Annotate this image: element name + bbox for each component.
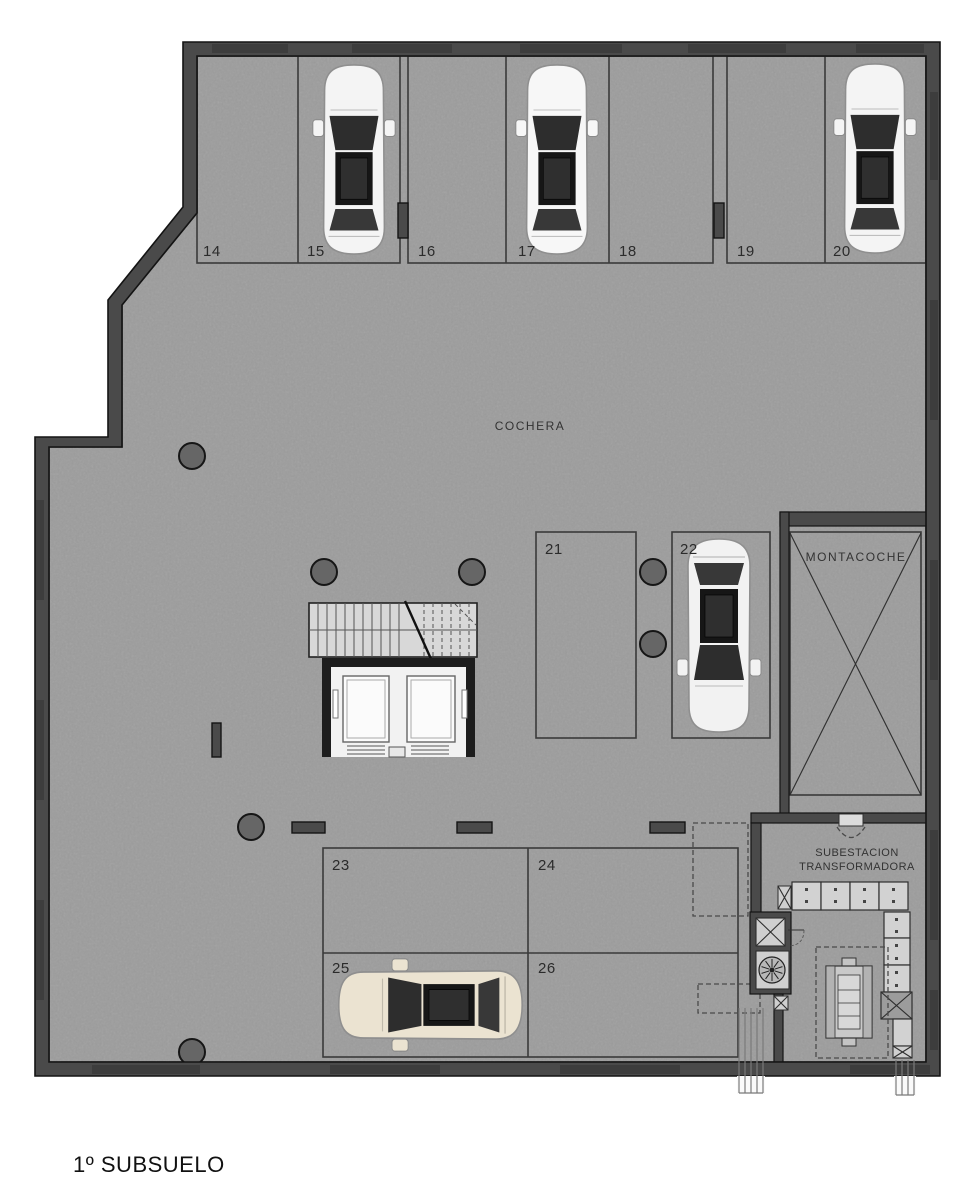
stall-label-22: 22 bbox=[680, 541, 698, 558]
car-topview-stall-22 bbox=[677, 539, 761, 732]
stall-label-19: 19 bbox=[737, 243, 755, 260]
car-topview-stall-20 bbox=[834, 64, 916, 253]
staircase bbox=[309, 601, 477, 659]
stall-label-21: 21 bbox=[545, 541, 563, 558]
column bbox=[212, 723, 221, 757]
car-topview-stall-15 bbox=[313, 65, 395, 254]
round-column bbox=[640, 559, 666, 585]
round-column bbox=[459, 559, 485, 585]
car-topview-stall-17 bbox=[516, 65, 598, 254]
ventilation-fan-icon bbox=[756, 951, 789, 989]
stall-label-26: 26 bbox=[538, 960, 556, 977]
stall-label-17: 17 bbox=[518, 243, 536, 260]
stall-label-15: 15 bbox=[307, 243, 325, 260]
round-column bbox=[179, 1039, 205, 1065]
column bbox=[398, 203, 408, 238]
substation-label-line2: TRANSFORMADORA bbox=[799, 861, 915, 873]
stall-label-23: 23 bbox=[332, 857, 350, 874]
concrete-texture bbox=[35, 42, 940, 1076]
round-column bbox=[238, 814, 264, 840]
floor-plan: 14 15 16 17 18 19 20 21 22 23 24 25 26 C… bbox=[0, 0, 974, 1200]
car-lift-label: MONTACOCHE bbox=[806, 550, 907, 564]
elevator-cabin bbox=[343, 676, 389, 742]
car-topview-stall-25 bbox=[339, 959, 522, 1051]
stall-label-25: 25 bbox=[332, 960, 350, 977]
stall-label-24: 24 bbox=[538, 857, 556, 874]
elevator-bank bbox=[322, 658, 475, 757]
column bbox=[292, 822, 325, 833]
column bbox=[650, 822, 685, 833]
stall-label-18: 18 bbox=[619, 243, 637, 260]
round-column bbox=[311, 559, 337, 585]
floor-plan-canvas: 14 15 16 17 18 19 20 21 22 23 24 25 26 C… bbox=[0, 0, 974, 1200]
stall-label-16: 16 bbox=[418, 243, 436, 260]
round-column bbox=[640, 631, 666, 657]
stall-label-14: 14 bbox=[203, 243, 221, 260]
substation-label-line1: SUBESTACION bbox=[815, 847, 899, 859]
round-column bbox=[179, 443, 205, 469]
column bbox=[457, 822, 492, 833]
stall-label-20: 20 bbox=[833, 243, 851, 260]
room-label-cochera: COCHERA bbox=[495, 419, 566, 433]
elevator-cabin bbox=[407, 676, 455, 742]
column bbox=[714, 203, 724, 238]
plan-title: 1º SUBSUELO bbox=[73, 1152, 225, 1178]
